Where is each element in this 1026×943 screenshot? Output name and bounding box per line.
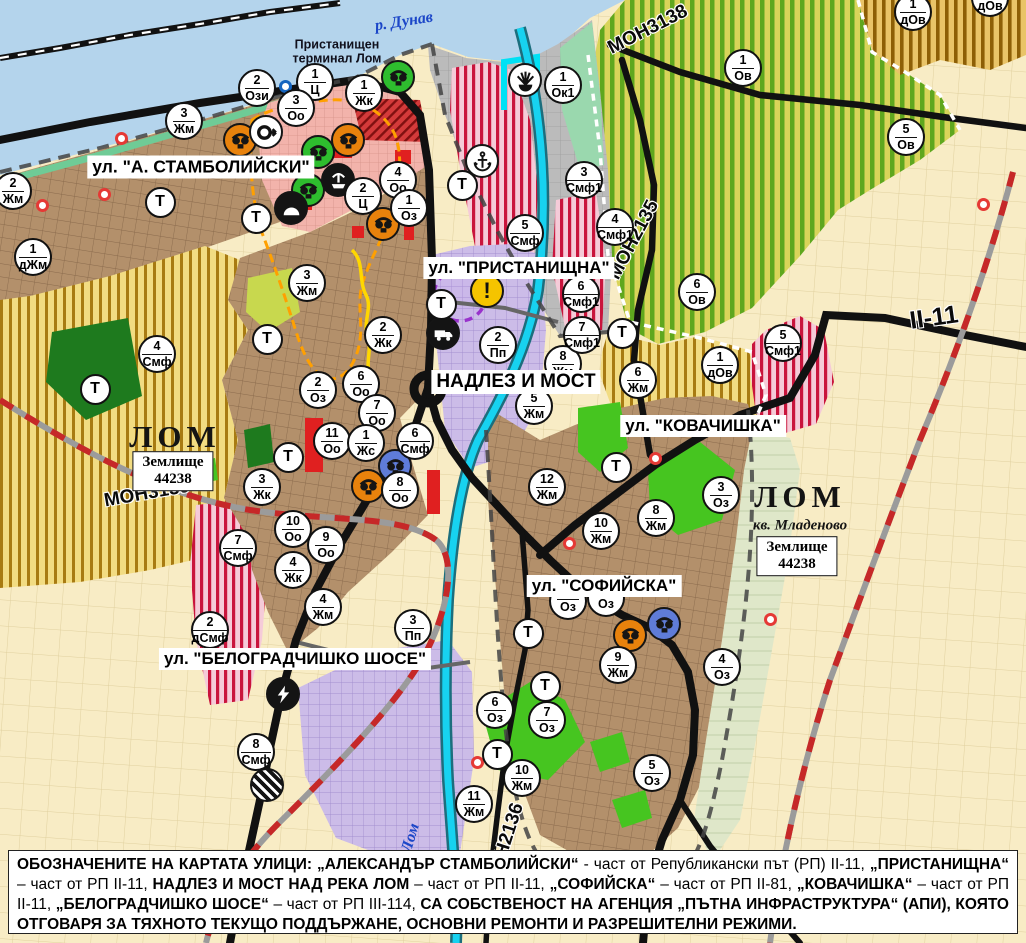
land-plot-number: 44238 bbox=[766, 556, 827, 573]
landmark-icon bbox=[647, 607, 681, 641]
marker-code: Жк bbox=[251, 487, 273, 502]
street-label: ул. "А. СТАМБОЛИЙСКИ" bbox=[87, 156, 314, 179]
marker-number: 5 bbox=[903, 123, 910, 137]
zone-marker: 4Жк bbox=[274, 551, 312, 589]
marker-number: 12 bbox=[540, 473, 554, 487]
marker-number: 1 bbox=[361, 79, 368, 93]
transport-marker: Т bbox=[241, 203, 272, 234]
marker-number: 5 bbox=[780, 329, 787, 343]
marker-number: 6 bbox=[578, 280, 585, 294]
marker-number: 10 bbox=[515, 764, 529, 778]
transport-marker: Т bbox=[607, 318, 638, 349]
marker-number: 10 bbox=[286, 515, 300, 529]
marker-number: 7 bbox=[579, 321, 586, 335]
marker-code: Оз bbox=[641, 773, 663, 788]
cave-icon bbox=[274, 191, 308, 225]
marker-code: Смф1 bbox=[564, 335, 600, 350]
marker-number: 3 bbox=[581, 166, 588, 180]
marker-number: 2 bbox=[207, 616, 214, 630]
caption-segment: – част от РП II-11, bbox=[17, 876, 152, 893]
marker-number: 3 bbox=[259, 473, 266, 487]
marker-number: 2 bbox=[10, 177, 17, 191]
marker-code: Ок1 bbox=[552, 85, 575, 100]
truck-icon bbox=[426, 316, 460, 350]
marker-number: 1 bbox=[560, 71, 567, 85]
caption: ОБОЗНАЧЕНИТЕ НА КАРТАТА УЛИЦИ: „АЛЕКСАНД… bbox=[8, 850, 1018, 934]
marker-code: Смф bbox=[142, 354, 171, 369]
arrow-circle-icon bbox=[249, 115, 283, 149]
zone-marker: 2Оз bbox=[299, 371, 337, 409]
marker-code: дСмф bbox=[192, 630, 229, 645]
red-point-marker bbox=[36, 199, 49, 212]
marker-code: Оо bbox=[285, 108, 307, 123]
marker-code: Ов bbox=[686, 292, 708, 307]
road-label: II-11 bbox=[908, 300, 960, 335]
land-plot-name: Землище bbox=[142, 454, 203, 471]
caption-segment: „СОФИЙСКА“ bbox=[550, 876, 656, 893]
zone-marker: 4Смф bbox=[138, 335, 176, 373]
zone-marker: 8Смф bbox=[237, 733, 275, 771]
marker-code: Смф1 bbox=[597, 227, 633, 242]
marker-code: Жм bbox=[511, 778, 533, 793]
transport-marker: Т bbox=[447, 170, 478, 201]
zone-marker: 3Смф1 bbox=[565, 161, 603, 199]
marker-code: Оо bbox=[315, 545, 337, 560]
zone-marker: 3Жм bbox=[288, 264, 326, 302]
marker-code: Жк bbox=[353, 93, 375, 108]
road-label: МОН3138 bbox=[604, 1, 691, 60]
transport-marker: Т bbox=[145, 187, 176, 218]
marker-number: 8 bbox=[653, 504, 660, 518]
street-label: ул. "ПРИСТАНИЩНА" bbox=[423, 257, 614, 279]
marker-number: 5 bbox=[649, 759, 656, 773]
marker-code: Ц bbox=[352, 196, 374, 211]
marker-code: Оз bbox=[711, 667, 733, 682]
land-plot-box: Землище44238 bbox=[132, 451, 213, 491]
marker-code: Смф bbox=[223, 548, 252, 563]
marker-number: 6 bbox=[412, 427, 419, 441]
place-label: ЛОМ bbox=[754, 479, 845, 515]
marker-code: Жм bbox=[2, 191, 24, 206]
marker-number: 2 bbox=[495, 331, 502, 345]
place-label: кв. Младеново bbox=[753, 518, 847, 535]
zone-marker: 9Жм bbox=[599, 646, 637, 684]
zone-marker: 12Жм bbox=[528, 468, 566, 506]
marker-code: Смф1 bbox=[566, 180, 602, 195]
caption-segment: ОБОЗНАЧЕНИТЕ НА КАРТАТА УЛИЦИ: „АЛЕКСАНД… bbox=[17, 856, 579, 873]
zone-marker: 2Ц bbox=[344, 177, 382, 215]
caption-segment: НАДЛЕЗ И МОСТ НАД РЕКА ЛОМ bbox=[152, 876, 409, 893]
zone-marker: 6Жм bbox=[619, 361, 657, 399]
marker-number: 3 bbox=[304, 269, 311, 283]
zone-marker: 8Жм bbox=[637, 499, 675, 537]
rail-crossing-icon bbox=[250, 768, 284, 802]
marker-number: 1 bbox=[312, 68, 319, 82]
marker-code: Оз bbox=[710, 495, 732, 510]
zone-marker: 5Смф1 bbox=[764, 324, 802, 362]
marker-code: Жк bbox=[282, 570, 304, 585]
marker-code: Ов bbox=[732, 68, 754, 83]
marker-number: 8 bbox=[253, 738, 260, 752]
red-point-marker bbox=[977, 198, 990, 211]
marker-number: 6 bbox=[694, 278, 701, 292]
map-canvas[interactable]: 1Ц1Жк3Оо2Ози3Жм2Жм1дЖм4Оо2Ц1Оз3Жм2Жк4Смф… bbox=[0, 0, 1026, 943]
marker-code: Смф1 bbox=[765, 343, 801, 358]
marker-code: дОв bbox=[900, 12, 925, 27]
marker-number: 3 bbox=[181, 107, 188, 121]
place-label: Пристанищен терминал Лом bbox=[293, 38, 382, 67]
transport-marker: Т bbox=[426, 289, 457, 320]
marker-code: Оз bbox=[307, 390, 329, 405]
red-point-marker bbox=[98, 188, 111, 201]
marker-code: Пп bbox=[487, 345, 509, 360]
marker-number: 1 bbox=[717, 351, 724, 365]
marker-number: 5 bbox=[522, 219, 529, 233]
marker-number: 7 bbox=[235, 534, 242, 548]
marker-number: 7 bbox=[374, 399, 381, 413]
transport-marker: Т bbox=[530, 671, 561, 702]
red-point-marker bbox=[563, 537, 576, 550]
zone-marker: 1Ов bbox=[724, 49, 762, 87]
place-label: ЛОМ bbox=[129, 419, 220, 455]
street-label: НАДЛЕЗ И МОСТ bbox=[431, 370, 600, 394]
zone-marker: 4Жм bbox=[304, 588, 342, 626]
landmark-icon bbox=[331, 123, 365, 157]
caption-segment: „БЕЛОГРАДЧИШКО ШОСЕ“ bbox=[56, 896, 269, 913]
marker-number: 3 bbox=[293, 94, 300, 108]
marker-number: 1 bbox=[740, 54, 747, 68]
marker-number: 1 bbox=[406, 194, 413, 208]
marker-number: 9 bbox=[323, 531, 330, 545]
marker-number: 11 bbox=[467, 790, 480, 804]
red-point-marker bbox=[649, 452, 662, 465]
marker-code: Ози bbox=[245, 88, 269, 103]
red-point-marker bbox=[115, 132, 128, 145]
zone-marker: 3Оз bbox=[702, 476, 740, 514]
zone-marker: 3Жк bbox=[243, 468, 281, 506]
zone-marker: 1дОв bbox=[701, 346, 739, 384]
zone-marker: 1Жс bbox=[347, 424, 385, 462]
landmark-icon bbox=[381, 60, 415, 94]
zone-marker: 4Смф1 bbox=[596, 208, 634, 246]
marker-number: 8 bbox=[397, 476, 404, 490]
marker-code: дОв bbox=[707, 365, 732, 380]
street-label: ул. "СОФИЙСКА" bbox=[527, 575, 682, 597]
marker-code: Жм bbox=[645, 518, 667, 533]
zone-marker: 4Оз bbox=[703, 648, 741, 686]
marker-number: 9 bbox=[615, 651, 622, 665]
zone-marker: 3Жм bbox=[165, 102, 203, 140]
zone-marker: 6Смф bbox=[396, 422, 434, 460]
land-plot-number: 44238 bbox=[142, 471, 203, 488]
marker-code: Жм bbox=[627, 380, 649, 395]
marker-code: Жм bbox=[463, 804, 485, 819]
land-plot-name: Землище bbox=[766, 539, 827, 556]
zone-marker: 6Ов bbox=[678, 273, 716, 311]
marker-number: 10 bbox=[594, 517, 608, 531]
marker-number: 3 bbox=[410, 614, 417, 628]
caption-segment: – част от РП II-81, bbox=[655, 876, 796, 893]
zone-marker: 5Смф bbox=[506, 214, 544, 252]
marker-code: Смф bbox=[510, 233, 539, 248]
caption-segment: – част от РП II-11, bbox=[409, 876, 549, 893]
zone-marker: 1дОв bbox=[971, 0, 1009, 17]
marker-number: 1 bbox=[910, 0, 917, 12]
transport-marker: Т bbox=[273, 442, 304, 473]
zone-marker: 11Оо bbox=[313, 422, 351, 460]
marker-code: Оз bbox=[398, 208, 420, 223]
zone-marker: 2Ози bbox=[238, 69, 276, 107]
transport-marker: Т bbox=[80, 374, 111, 405]
marker-code: Оз bbox=[484, 710, 506, 725]
marker-code: Ов bbox=[895, 137, 917, 152]
zone-marker: 2дСмф bbox=[191, 611, 229, 649]
marker-number: 8 bbox=[560, 350, 567, 364]
marker-code: Жс bbox=[355, 443, 377, 458]
marker-number: 2 bbox=[315, 376, 322, 390]
marker-number: 7 bbox=[544, 706, 551, 720]
marker-code: Жм bbox=[536, 487, 558, 502]
land-plot-box: Землище44238 bbox=[756, 536, 837, 576]
zone-marker: 1Ок1 bbox=[544, 66, 582, 104]
caption-segment: „КОВАЧИШКА“ bbox=[797, 876, 913, 893]
marker-number: 11 bbox=[325, 427, 338, 441]
marker-code: Пп bbox=[402, 628, 424, 643]
marker-number: 2 bbox=[254, 74, 261, 88]
street-label: ул. "БЕЛОГРАДЧИШКО ШОСЕ" bbox=[159, 648, 431, 670]
beacon-icon bbox=[508, 63, 542, 97]
zone-marker: 3Оо bbox=[277, 89, 315, 127]
zone-marker: 1Оз bbox=[390, 189, 428, 227]
zone-marker: 2Пп bbox=[479, 326, 517, 364]
zone-marker: 1дЖм bbox=[14, 238, 52, 276]
marker-number: 6 bbox=[492, 696, 499, 710]
zone-marker: 5Оз bbox=[633, 754, 671, 792]
zone-marker: 9Оо bbox=[307, 526, 345, 564]
marker-code: Оз bbox=[536, 720, 558, 735]
marker-code: Оо bbox=[321, 441, 343, 456]
marker-code: Оо bbox=[282, 529, 304, 544]
zone-marker: 2Жк bbox=[364, 316, 402, 354]
marker-code: Жм bbox=[296, 283, 318, 298]
marker-number: 1 bbox=[30, 243, 37, 257]
marker-code: Оз bbox=[557, 599, 579, 614]
marker-code: Жм bbox=[312, 607, 334, 622]
marker-number: 6 bbox=[358, 370, 365, 384]
zone-marker: 3Пп bbox=[394, 609, 432, 647]
marker-code: дОв bbox=[977, 0, 1002, 12]
marker-code: Жм bbox=[173, 121, 195, 136]
zone-marker: 11Жм bbox=[455, 785, 493, 823]
marker-number: 4 bbox=[290, 556, 297, 570]
zone-marker: 10Жм bbox=[582, 512, 620, 550]
marker-code: Оз bbox=[595, 596, 617, 611]
transport-marker: Т bbox=[513, 618, 544, 649]
zone-marker: 5Ов bbox=[887, 118, 925, 156]
marker-number: 5 bbox=[531, 392, 538, 406]
zone-marker: 6Смф1 bbox=[562, 275, 600, 313]
marker-number: 2 bbox=[360, 182, 367, 196]
zone-marker: 1дОв bbox=[894, 0, 932, 31]
zone-marker: 7Оз bbox=[528, 701, 566, 739]
zone-marker: 10Жм bbox=[503, 759, 541, 797]
marker-code: Жм bbox=[607, 665, 629, 680]
zone-marker: 2Жм bbox=[0, 172, 32, 210]
zone-marker: 6Оз bbox=[476, 691, 514, 729]
street-label: ул. "КОВАЧИШКА" bbox=[620, 415, 786, 437]
marker-number: 6 bbox=[635, 366, 642, 380]
marker-number: 2 bbox=[380, 321, 387, 335]
caption-segment: - част от Републикански път (РП) II-11, bbox=[579, 856, 870, 873]
zone-marker: 7Смф1 bbox=[563, 316, 601, 354]
marker-code: Смф bbox=[400, 441, 429, 456]
transport-marker: Т bbox=[601, 452, 632, 483]
map-overlay: 1Ц1Жк3Оо2Ози3Жм2Жм1дЖм4Оо2Ц1Оз3Жм2Жк4Смф… bbox=[0, 0, 1026, 943]
marker-number: 3 bbox=[718, 481, 725, 495]
zone-marker: 1Жк bbox=[345, 74, 383, 112]
marker-number: 4 bbox=[612, 213, 619, 227]
marker-code: Смф1 bbox=[563, 294, 599, 309]
transport-marker: Т bbox=[252, 324, 283, 355]
lightning-icon bbox=[266, 677, 300, 711]
marker-number: 4 bbox=[719, 653, 726, 667]
red-point-marker bbox=[764, 613, 777, 626]
zone-marker: 7Смф bbox=[219, 529, 257, 567]
marker-number: 4 bbox=[154, 340, 161, 354]
marker-number: 1 bbox=[363, 429, 370, 443]
marker-code: Смф bbox=[241, 752, 270, 767]
marker-code: Жм bbox=[590, 531, 612, 546]
marker-code: Оо bbox=[389, 490, 411, 505]
warning-icon: ! bbox=[470, 274, 504, 308]
place-label: р. Дунав bbox=[374, 9, 435, 36]
marker-code: Жм bbox=[523, 406, 545, 421]
marker-number: 4 bbox=[395, 166, 402, 180]
marker-code: Жк bbox=[372, 335, 394, 350]
caption-segment: „ПРИСТАНИЩНА“ bbox=[870, 856, 1009, 873]
zone-marker: 8Оо bbox=[381, 471, 419, 509]
marker-code: дЖм bbox=[19, 257, 47, 272]
marker-number: 4 bbox=[320, 593, 327, 607]
caption-segment: – част от РП III-114, bbox=[269, 896, 421, 913]
